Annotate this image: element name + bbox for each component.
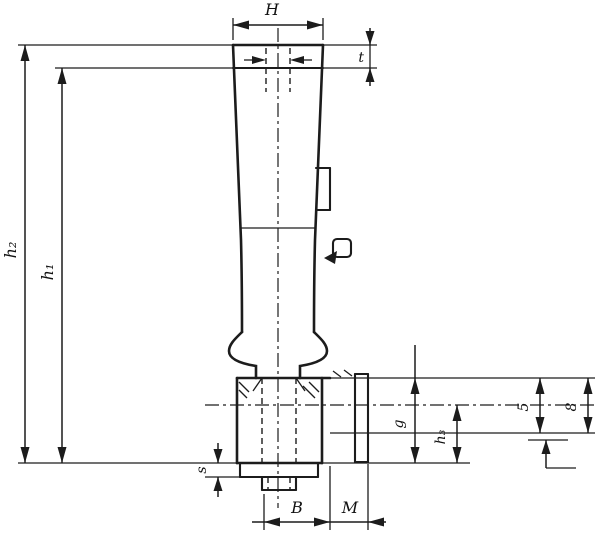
lower-height-label: h₃ (433, 429, 449, 444)
grip-right-side (314, 45, 323, 332)
grip-flange-left (229, 332, 256, 378)
collar-height-label: s (194, 466, 210, 473)
top-width-label: H (264, 0, 280, 19)
dim-crown-height: t (323, 28, 377, 86)
stud-outline (262, 477, 296, 490)
dim-gap-leader (528, 440, 576, 468)
bore-depth-label: 5 (516, 402, 532, 411)
dim-lower-height: h₃ (433, 405, 462, 463)
hub-height-label: g (391, 419, 407, 428)
grip-flange-right (300, 332, 327, 378)
countersink-left (253, 378, 262, 391)
mount-section (18, 370, 595, 490)
clip-leader-arrow (324, 251, 337, 264)
dimension-drawing: H t h₂ h₁ g h₃ (0, 0, 600, 548)
countersink-right (296, 378, 305, 391)
grip-outline (229, 45, 351, 378)
dim-hub-height: g (391, 345, 420, 463)
collar-outline (240, 463, 318, 477)
overall-height-label: h₂ (1, 242, 20, 259)
rim-thickness-label: 8 (564, 402, 580, 411)
crown-height-label: t (358, 50, 364, 66)
base-width-label: B (290, 498, 303, 517)
dim-grip-height: h₁ (38, 68, 233, 463)
thread-label: M (341, 498, 359, 517)
center-lines (205, 28, 595, 508)
dim-overall-height: h₂ (1, 45, 233, 463)
dim-collar-height: s (194, 443, 223, 497)
bushing-strip (355, 374, 368, 462)
arrow-left (233, 21, 249, 30)
grip-left-side (233, 45, 242, 332)
arrow-right (307, 21, 323, 30)
retaining-clip-detail (324, 239, 351, 264)
grip-height-label: h₁ (38, 264, 57, 281)
dim-rim-thickness: 8 (564, 378, 593, 433)
drawing-canvas: H t h₂ h₁ g h₃ (0, 0, 600, 548)
